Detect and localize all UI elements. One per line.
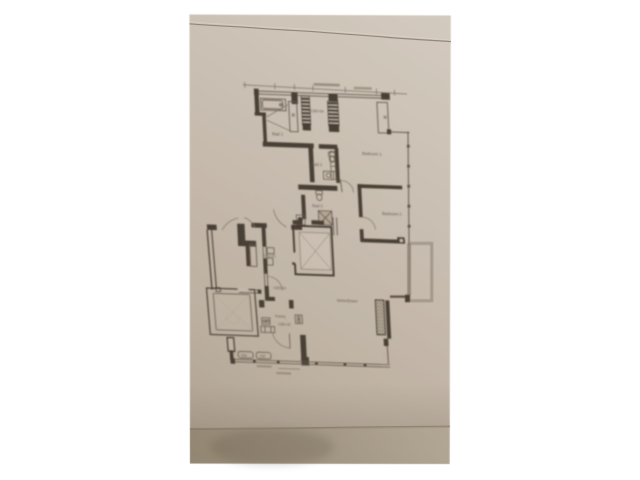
svg-text:CBD-02: CBD-02 [273, 286, 286, 290]
svg-text:Bad 1: Bad 1 [272, 131, 284, 136]
svg-text:Bedroom 2: Bedroom 2 [382, 211, 403, 217]
svg-text:CBD-02: CBD-02 [278, 322, 291, 326]
svg-text:Pantry: Pantry [275, 314, 286, 318]
svg-text:CBD-01: CBD-01 [263, 254, 276, 258]
svg-text:Wohn/Essen: Wohn/Essen [337, 299, 358, 304]
svg-text:Bedroom 1: Bedroom 1 [362, 151, 383, 157]
svg-text:Bad 3: Bad 3 [312, 203, 323, 208]
svg-text:Bad 2: Bad 2 [312, 162, 323, 167]
svg-text:CBD-5A: CBD-5A [311, 109, 325, 113]
